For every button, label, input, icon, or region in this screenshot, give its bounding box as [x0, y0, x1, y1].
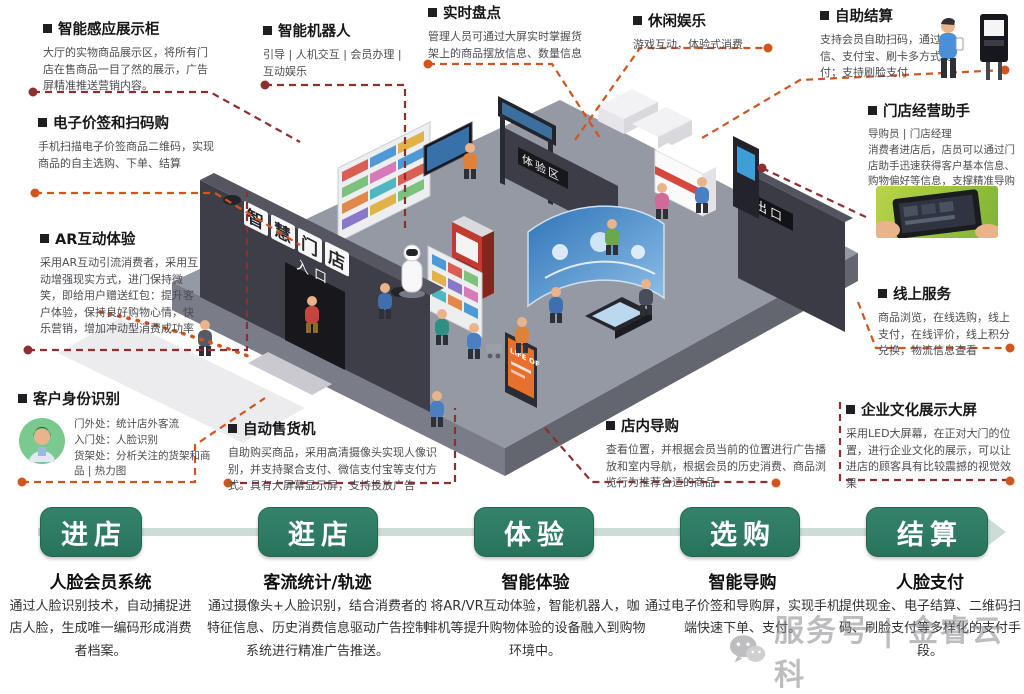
callout-desc: 采用AR互动引流消费者，采用互动增强现实方式，进门保持微笑，即给用户赠送红包：提… — [40, 255, 200, 338]
callout-online-service: 线上服务 商品浏览，在线选购，线上支付，在线评价，线上积分兑换，物流信息查看 — [878, 283, 1020, 360]
callout-realtime-inventory: 实时盘点 管理人员可通过大屏实时掌握货架上的商品摆放信息、数量信息 — [428, 2, 586, 62]
callout-vending-machine: 自动售货机 自助购买商品，采用高清摄像头实现人像识别，并支持聚合支付、微信支付宝… — [228, 418, 456, 495]
callout-e-price-tag: 电子价签和扫码购 手机扫描电子价签商品二维码，实现商品的自主选购、下单、结算 — [38, 112, 216, 172]
flow-subtitle: 客流统计/轨迹 — [210, 568, 425, 593]
bullet-icon — [40, 234, 49, 243]
callout-title: 线上服务 — [893, 283, 951, 304]
flow-step-label: 结算 — [891, 513, 963, 552]
flow-step-label: 选购 — [704, 513, 776, 552]
bullet-icon — [18, 394, 27, 403]
bullet-icon — [846, 405, 855, 414]
flow-subtitle: 智能体验 — [428, 568, 643, 593]
callout-title: 休闲娱乐 — [648, 10, 706, 31]
callout-desc: 大厅的实物商品展示区，将所有门店在售商品一目了然的展示，广告屏精准推送营销内容。 — [43, 45, 215, 95]
flow-step-enter: 进店 — [40, 507, 142, 557]
callout-smart-display-cabinet: 智能感应展示柜 大厅的实物商品展示区，将所有门店在售商品一目了然的展示，广告屏精… — [43, 18, 215, 95]
callout-title: 自助结算 — [835, 5, 893, 26]
callout-title: 企业文化展示大屏 — [861, 399, 977, 420]
flow-step-experience: 体验 — [474, 507, 594, 557]
callout-title: 客户身份识别 — [33, 388, 120, 409]
bullet-icon — [38, 118, 47, 127]
callout-title: 店内导购 — [621, 415, 679, 436]
callout-culture-screen: 企业文化展示大屏 采用LED大屏幕，在正对大门的位置，进行企业文化的展示，可以让… — [846, 399, 1018, 492]
flow-desc: 通过摄像头+人脸识别，结合消费者的特征信息、历史消费信息驱动广告控制系统进行精准… — [205, 596, 430, 663]
flow-subtitle: 人脸支付 — [830, 568, 1024, 593]
callout-smart-robot: 智能机器人 引导 | 人机交互 | 会员办理 | 互动娱乐 — [263, 20, 413, 80]
flow-step-select: 选购 — [680, 507, 800, 557]
callout-leisure-entertainment: 休闲娱乐 游戏互动，体验式消费 — [633, 10, 793, 54]
callout-desc: 门外处：统计店外客流 入门处：人脸识别 货架处：分析关注的货架和商品 | 热力图 — [74, 417, 216, 480]
bullet-icon — [428, 8, 437, 17]
self-checkout-illustration — [928, 8, 1016, 86]
flow-desc: 将AR/VR互动体验，智能机器人，咖啡机等提升购物体验的设备融入到购物环境中。 — [424, 596, 646, 663]
flow-step-label: 逛店 — [282, 513, 354, 552]
callout-ar-experience: AR互动体验 采用AR互动引流消费者，采用互动增强现实方式，进门保持微笑，即给用… — [40, 228, 200, 338]
callout-title: 智能机器人 — [278, 20, 351, 41]
flow-step-label: 体验 — [498, 513, 570, 552]
callout-title: 电子价签和扫码购 — [53, 112, 169, 133]
flow-desc: 通过人脸识别技术，自动捕捉进店人脸，生成唯一编码形成消费者档案。 — [8, 596, 193, 663]
tablet-photo — [876, 186, 998, 238]
bullet-icon — [820, 11, 829, 20]
callout-desc: 游戏互动，体验式消费 — [633, 37, 793, 54]
bullet-icon — [878, 289, 887, 298]
callout-desc: 商品浏览，在线选购，线上支付，在线评价，线上积分兑换，物流信息查看 — [878, 310, 1020, 360]
callout-desc: 导购员 | 门店经理 消费者进店后，店员可以通过门店助手迅速获得客户基本信息、购… — [868, 127, 1018, 190]
bullet-icon — [868, 106, 877, 115]
callout-desc: 引导 | 人机交互 | 会员办理 | 互动娱乐 — [263, 47, 413, 80]
callout-store-assistant: 门店经营助手 导购员 | 门店经理 消费者进店后，店员可以通过门店助手迅速获得客… — [868, 100, 1018, 190]
callout-desc: 管理人员可通过大屏实时掌握货架上的商品摆放信息、数量信息 — [428, 29, 586, 62]
bullet-icon — [633, 16, 642, 25]
callout-title: AR互动体验 — [55, 228, 135, 249]
bullet-icon — [228, 424, 237, 433]
bullet-icon — [606, 421, 615, 430]
callout-title: 实时盘点 — [443, 2, 501, 23]
flow-desc: 提供现金、电子结算、二维码扫码、刷脸支付等多样化的支付手段。 — [828, 596, 1024, 663]
callout-desc: 采用LED大屏幕，在正对大门的位置，进行企业文化的展示，可以让进店的顾客具有比较… — [846, 426, 1018, 492]
callout-desc: 查看位置，并根据会员当前的位置进行广告播放和室内导航，根据会员的历史消费、商品浏… — [606, 442, 828, 492]
flow-subtitle: 智能导购 — [645, 568, 840, 593]
flow-step-browse: 逛店 — [258, 507, 378, 557]
flow-desc: 通过电子价签和导购屏，实现手机端快速下单、支付。 — [645, 596, 840, 641]
customer-avatar — [18, 417, 66, 465]
bullet-icon — [43, 24, 52, 33]
callout-title: 门店经营助手 — [883, 100, 970, 121]
flow-step-label: 进店 — [55, 513, 127, 552]
assistant-kiosk — [733, 136, 759, 219]
flow-subtitle: 人脸会员系统 — [8, 568, 193, 593]
callout-title: 自动售货机 — [243, 418, 316, 439]
callout-in-store-guide: 店内导购 查看位置，并根据会员当前的位置进行广告播放和室内导航，根据会员的历史消… — [606, 415, 828, 492]
bullet-icon — [263, 26, 272, 35]
callout-customer-identification: 客户身份识别 门外处：统计店外客流 入门处：人脸识别 货架处：分析关注的货架和商… — [18, 388, 233, 480]
callout-desc: 自助购买商品，采用高清摄像头实现人像识别，并支持聚合支付、微信支付宝等支付方式。… — [228, 445, 456, 495]
flow-step-checkout: 结算 — [866, 507, 988, 557]
callout-title: 智能感应展示柜 — [58, 18, 160, 39]
flow-arrowhead-icon — [986, 517, 1006, 547]
callout-desc: 手机扫描电子价签商品二维码，实现商品的自主选购、下单、结算 — [38, 139, 216, 172]
